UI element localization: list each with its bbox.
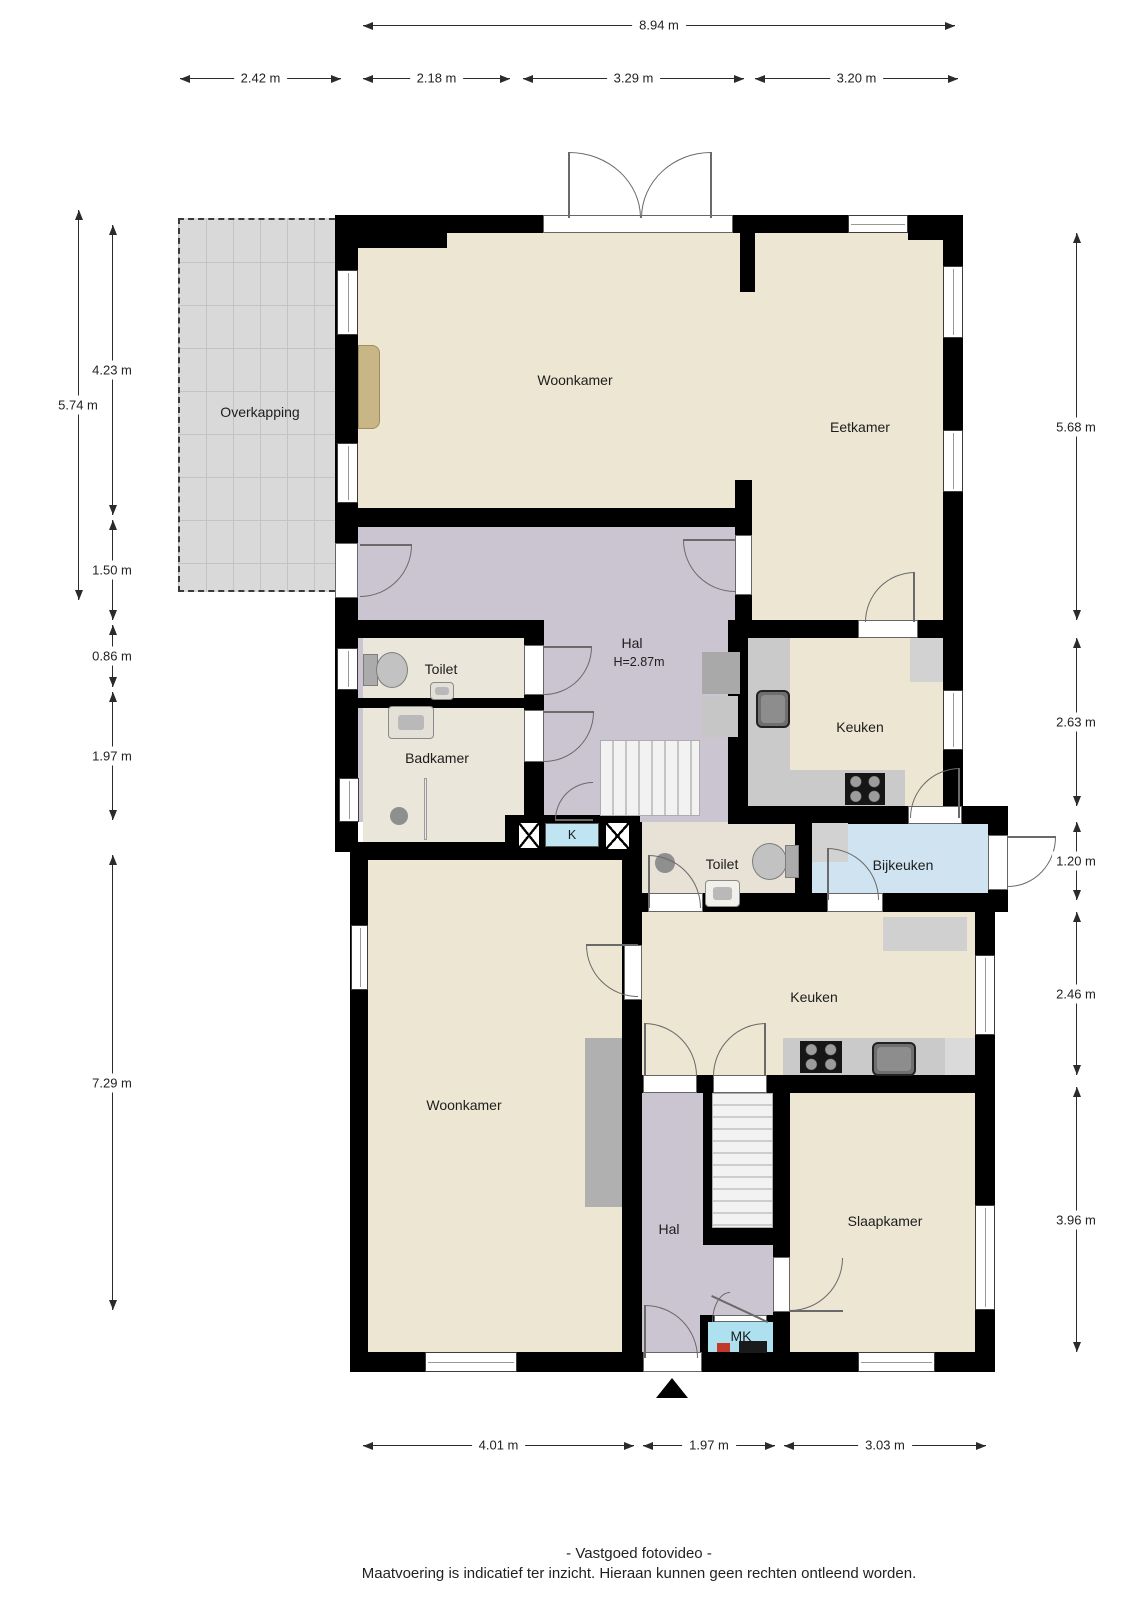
dim-label: 1.97 m <box>682 1438 736 1453</box>
door-bijkeuken-keuken2-leaf <box>827 848 829 900</box>
hal-cabinet2-icon <box>702 696 738 737</box>
bathroom-sink-icon <box>388 706 434 739</box>
dim-label: 2.42 m <box>234 71 288 86</box>
dim-label: 1.97 m <box>88 747 136 766</box>
dim-bottom-197: 1.97 m <box>643 1445 775 1446</box>
door-keuken2-left-leaf <box>644 1023 646 1076</box>
window-slaapkamer-bottom <box>858 1352 935 1372</box>
hal-cabinet-icon <box>702 652 740 694</box>
wall-slaapkamer-left <box>773 1093 790 1372</box>
meter-red-icon <box>717 1343 730 1352</box>
dim-label: 2.63 m <box>1052 713 1100 732</box>
footer-disclaimer: Maatvoering is indicatief ter inzicht. H… <box>66 1565 1132 1582</box>
room-label-slaapkamer: Slaapkamer <box>848 1213 923 1229</box>
dim-left-086: 0.86 m <box>112 625 113 687</box>
dim-top-seg2: 2.18 m <box>363 78 510 79</box>
dim-right-120: 1.20 m <box>1076 822 1077 900</box>
dim-bottom-401: 4.01 m <box>363 1445 634 1446</box>
dim-right-568: 5.68 m <box>1076 233 1077 620</box>
window-eetkamer-top <box>848 215 908 233</box>
dim-left-574: 5.74 m <box>78 210 79 600</box>
room-label-badkamer: Badkamer <box>405 750 469 766</box>
window-badkamer-left <box>339 778 359 822</box>
staircase-up-icon <box>600 740 700 816</box>
room-woonkamer-eetkamer-top <box>358 233 943 527</box>
dim-left-150: 1.50 m <box>112 520 113 620</box>
window-woonkamer-left-2 <box>337 443 358 503</box>
hatch-x-left-icon <box>517 821 541 850</box>
dim-left-197: 1.97 m <box>112 692 113 820</box>
dim-label: 4.23 m <box>88 361 136 380</box>
door-hal-eetkamer-threshold <box>735 535 752 595</box>
stove-hob-icon <box>845 773 885 805</box>
room-label-overkapping: Overkapping <box>220 404 299 420</box>
dim-bottom-303: 3.03 m <box>784 1445 986 1446</box>
door-hal-exterior-threshold <box>335 543 358 598</box>
window-eetkamer-right-2 <box>943 430 963 492</box>
window-keuken-right <box>943 690 963 750</box>
door-hal-eetkamer-leaf <box>683 539 735 541</box>
room-label-woonkamer-top: Woonkamer <box>537 372 612 388</box>
window-woonkamer2-bottom <box>425 1352 517 1372</box>
door-k-leaf <box>555 819 593 821</box>
door-slaapkamer-threshold <box>773 1257 790 1312</box>
dim-label: 3.03 m <box>858 1438 912 1453</box>
door-badkamer-threshold <box>524 710 544 762</box>
room-label-keuken-top: Keuken <box>836 719 883 735</box>
window-eetkamer-right-1 <box>943 266 963 338</box>
door-eetkamer-keuken-threshold <box>858 620 918 638</box>
wall-stairs-stub <box>703 1228 773 1245</box>
wall-woonkamer-hal <box>335 508 738 527</box>
wall-keuken-bottom <box>728 806 1008 824</box>
door-woonkamer2-leaf <box>586 944 638 946</box>
door-toilet2-leaf <box>648 855 650 908</box>
door-french-right-leaf <box>710 152 712 218</box>
window-toilet-left <box>337 648 358 690</box>
dim-label: 2.18 m <box>410 71 464 86</box>
dim-right-263: 2.63 m <box>1076 638 1077 806</box>
kitchen-sink-icon <box>756 690 790 728</box>
dim-label: 5.68 m <box>1052 417 1100 436</box>
dim-top-total: 8.94 m <box>363 25 955 26</box>
door-keuken2-right-leaf <box>764 1023 766 1076</box>
door-keuken2-right-threshold <box>713 1075 767 1093</box>
door-badkamer-leaf <box>544 711 594 713</box>
door-french-left-arc <box>569 152 641 218</box>
dim-top-seg4: 3.20 m <box>755 78 958 79</box>
dim-top-seg3: 3.29 m <box>523 78 744 79</box>
staircase-down-icon <box>712 1093 773 1228</box>
kitchen-sink2-icon <box>872 1042 916 1076</box>
toilet2-sink-icon <box>705 880 740 907</box>
hatch-x-right-icon <box>604 821 631 851</box>
door-bijkeuken-exterior-arc <box>1008 837 1056 887</box>
kitchen2-top-cabinet-icon <box>883 917 967 951</box>
shower-head-icon <box>390 807 408 825</box>
wall-stairs-left <box>703 1093 712 1228</box>
door-toilet-threshold <box>524 645 544 695</box>
door-keuken-bijkeuken-leaf <box>958 768 960 818</box>
door-keuken2-left-threshold <box>643 1075 697 1093</box>
door-eetkamer-keuken-leaf <box>913 572 915 622</box>
door-slaapkamer-leaf <box>790 1310 843 1312</box>
door-toilet-leaf <box>544 646 592 648</box>
room-label-bijkeuken: Bijkeuken <box>873 857 934 873</box>
room-label-keuken-bottom: Keuken <box>790 989 837 1005</box>
dim-label: 3.20 m <box>830 71 884 86</box>
footer: - Vastgoed fotovideo - Maatvoering is in… <box>66 1545 1132 1582</box>
door-front-leaf <box>644 1305 646 1358</box>
shower-screen-icon <box>424 778 427 840</box>
kitchen2-counter-end-icon <box>945 1038 975 1075</box>
floorplan-canvas: 8.94 m 2.42 m 2.18 m 3.29 m 3.20 m 5.74 … <box>0 0 1132 1600</box>
entrance-arrow-icon <box>656 1378 688 1398</box>
dim-label: 7.29 m <box>88 1073 136 1092</box>
wall-mk-left <box>700 1315 708 1352</box>
door-french-left-leaf <box>568 152 570 218</box>
dim-label: 1.20 m <box>1052 852 1100 871</box>
dim-label: 4.01 m <box>472 1438 526 1453</box>
dim-label: 2.46 m <box>1052 984 1100 1003</box>
stove-hob2-icon <box>800 1041 842 1073</box>
dim-label: 3.96 m <box>1052 1210 1100 1229</box>
window-slaapkamer-right <box>975 1205 995 1310</box>
closet-label-mk: MK <box>731 1328 752 1344</box>
dim-left-729: 7.29 m <box>112 855 113 1310</box>
footer-brand: - Vastgoed fotovideo - <box>66 1545 1132 1562</box>
dim-top-overkapping: 2.42 m <box>180 78 341 79</box>
wall-keuken-top <box>728 620 963 638</box>
room-label-hal-height: H=2.87m <box>613 655 664 669</box>
dim-right-396: 3.96 m <box>1076 1087 1077 1352</box>
tv-cabinet-icon <box>585 1038 622 1207</box>
kitchen-corner-cabinet-icon <box>910 638 943 682</box>
closet-label-k: K <box>568 828 576 842</box>
room-label-toilet-mid: Toilet <box>706 856 739 872</box>
door-bijkeuken-exterior-leaf <box>1008 836 1056 838</box>
window-keuken2-right <box>975 955 995 1035</box>
dim-label: 3.29 m <box>607 71 661 86</box>
dim-label: 1.50 m <box>88 561 136 580</box>
window-woonkamer2-left <box>351 925 368 990</box>
room-label-eetkamer: Eetkamer <box>830 419 890 435</box>
toilet-icon <box>363 650 409 688</box>
door-french-right-arc <box>641 152 711 218</box>
dim-label: 8.94 m <box>632 18 686 33</box>
dim-right-246: 2.46 m <box>1076 912 1077 1075</box>
wall-stub-top <box>740 233 755 292</box>
door-hal-exterior-leaf <box>360 544 412 546</box>
toilet2-icon <box>752 841 798 881</box>
dim-label: 5.74 m <box>54 396 102 415</box>
window-woonkamer-left-1 <box>337 270 358 335</box>
wall-toilet-top <box>358 620 544 638</box>
door-bijkeuken-exterior-threshold <box>988 835 1008 890</box>
room-label-hal-bottom: Hal <box>658 1221 679 1237</box>
room-label-woonkamer-bottom: Woonkamer <box>426 1097 501 1113</box>
room-label-hal-top: Hal <box>621 635 642 651</box>
dim-label: 0.86 m <box>88 647 136 666</box>
wall-woonkamer2-right <box>622 822 642 1372</box>
small-sink-icon <box>430 682 454 700</box>
sideboard-icon <box>358 345 380 429</box>
room-label-toilet-top: Toilet <box>425 661 458 677</box>
dim-left-423: 4.23 m <box>112 225 113 515</box>
